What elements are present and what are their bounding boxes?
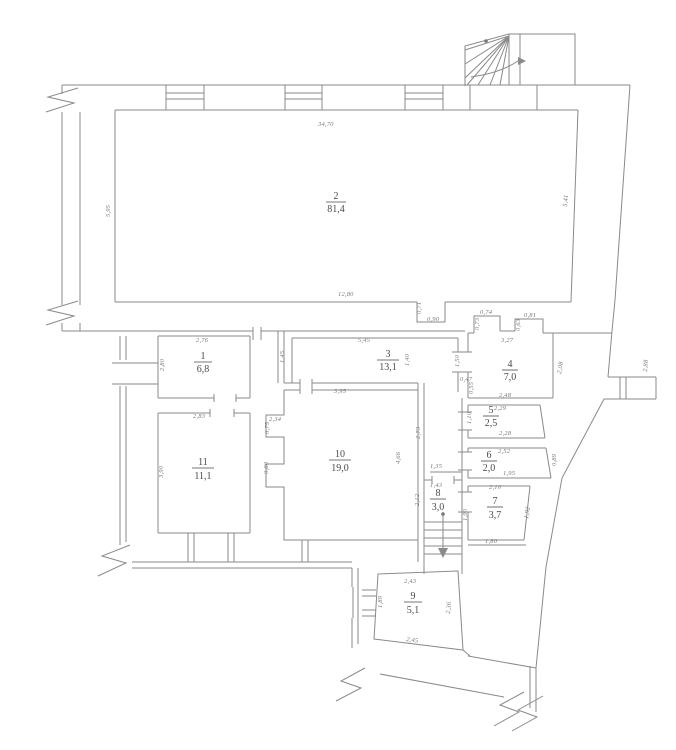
room-number: 2 <box>334 191 339 202</box>
dim-r10-right: 4,66 <box>395 451 402 464</box>
dim-r5-top: 2,29 <box>494 405 507 412</box>
room-label-8: 8 3,0 <box>430 488 446 513</box>
room-area: 11,1 <box>194 471 211 482</box>
room-number: 5 <box>489 405 494 416</box>
room-area: 5,1 <box>407 605 420 616</box>
dim-r7-top: 2,10 <box>489 484 502 491</box>
room-area: 2,5 <box>485 418 498 429</box>
room-number: 11 <box>198 457 208 468</box>
room-label-6: 6 2,0 <box>481 450 497 474</box>
floor-plan-canvas: 2 81,4 1 6,8 3 13,1 4 7,0 5 2,5 6 2,0 7 … <box>0 0 676 750</box>
dim-r9-left: 1,89 <box>377 595 384 608</box>
dim-r8-top: 1,43 <box>430 482 443 489</box>
room-number: 8 <box>436 488 441 499</box>
room-label-10: 10 19,0 <box>329 449 351 474</box>
room-number: 9 <box>411 591 416 602</box>
room-label-4: 4 7,0 <box>502 359 518 383</box>
dim-r4-left: 0,55 <box>468 381 475 394</box>
dim-notch-h: 0,90 <box>427 316 440 323</box>
room-number: 4 <box>508 359 513 370</box>
room-area: 3,0 <box>432 502 445 513</box>
room-label-7: 7 3,7 <box>487 496 503 521</box>
dim-corridor-1-3: 1,45 <box>279 350 286 363</box>
dim-r10-top: 3,95 <box>333 388 347 395</box>
dim-r4-bottom: 2,48 <box>499 392 512 399</box>
room-number: 6 <box>487 450 492 461</box>
dim-r11-top: 2,83 <box>193 413 206 420</box>
dim-r4-notch2-v: 0,63 <box>515 318 522 331</box>
dim-r7-bottom: 1,80 <box>485 538 498 545</box>
dim-door-3-4: 1,50 <box>454 354 461 367</box>
room-area: 6,8 <box>197 364 210 375</box>
dim-r3-right: 1,40 <box>404 353 411 366</box>
dim-r10-notch2-v: 0,80 <box>263 461 270 474</box>
dim-r10-notch1-v: 0,75 <box>264 421 271 434</box>
dim-r2-top: 34,70 <box>317 121 334 128</box>
dim-r5-left: 1,10 <box>466 411 473 424</box>
room-label-9: 9 5,1 <box>404 591 422 616</box>
room-label-1: 1 6,8 <box>194 351 212 375</box>
dim-r8-left: 2,12 <box>414 493 421 506</box>
dim-r1-left: 2,80 <box>159 358 166 371</box>
dim-r1-top: 2,76 <box>196 337 209 344</box>
dim-r3-top: 5,45 <box>358 337 371 344</box>
room-area: 13,1 <box>379 362 397 373</box>
room-area: 19,0 <box>331 463 349 474</box>
room-label-3: 3 13,1 <box>377 349 399 373</box>
top-wall-band <box>62 85 630 110</box>
break-symbol-porch-left <box>336 668 365 701</box>
room-area: 7,0 <box>504 372 517 383</box>
dim-r6-top: 2,52 <box>498 448 511 455</box>
room-label-11: 11 11,1 <box>192 457 214 482</box>
room-area: 3,7 <box>489 510 502 521</box>
dim-r2-right: 5,41 <box>562 194 570 207</box>
floor-plan-drawing: 2 81,4 1 6,8 3 13,1 4 7,0 5 2,5 6 2,0 7 … <box>0 0 676 750</box>
dim-r2-bottom: 12,80 <box>338 291 354 298</box>
stair-down-arrow-icon <box>438 512 448 558</box>
dim-exterior-right: 2,88 <box>642 359 650 372</box>
dim-r5-bottom: 2,28 <box>499 430 512 437</box>
dim-r7-right: 1,92 <box>523 506 532 520</box>
room-number: 1 <box>201 351 206 362</box>
break-symbol-bottom-left <box>98 545 130 576</box>
dim-r9-top: 2,43 <box>404 578 417 585</box>
dim-corridor-10: 2,73 <box>415 426 422 439</box>
dim-r4-notch1-v: 0,73 <box>474 317 481 330</box>
dim-r9-right: 2,36 <box>445 601 453 614</box>
room-number: 3 <box>386 349 391 360</box>
corridor-walls <box>278 331 424 562</box>
dim-r7-left: 1,90 <box>462 508 469 521</box>
room-area: 81,4 <box>327 204 345 215</box>
dim-r4-top: 3,27 <box>500 337 514 344</box>
room-11-outline <box>158 409 250 562</box>
room-number: 10 <box>335 449 345 460</box>
dim-r4-notch1: 0,74 <box>480 309 493 316</box>
room-number: 7 <box>493 496 498 507</box>
dim-r2-left: 5,95 <box>105 204 112 217</box>
dim-r6-right: 0,89 <box>551 453 558 466</box>
dim-r8-above: 1,35 <box>430 463 443 470</box>
porch-walls <box>380 650 536 697</box>
dim-r4-notch2: 0,81 <box>524 312 536 319</box>
room-9-window <box>352 568 376 648</box>
dim-r11-left: 3,90 <box>158 465 165 479</box>
dim-r6-bottom: 1,95 <box>503 470 516 477</box>
room-area: 2,0 <box>483 463 496 474</box>
dim-notch-v: 0,71 <box>416 302 423 314</box>
dim-r4-right: 2,08 <box>556 361 565 375</box>
left-outer-wall <box>62 85 126 331</box>
room-label-2: 2 81,4 <box>326 191 346 215</box>
